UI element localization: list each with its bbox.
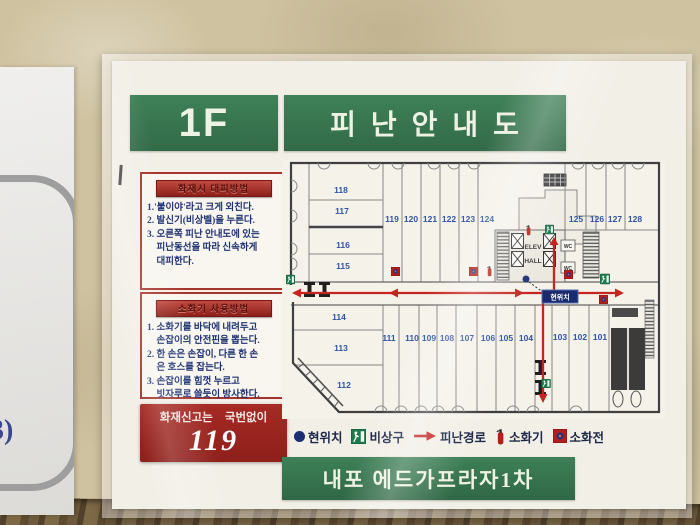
room-label-126: 126 [590, 214, 604, 224]
extinguisher-instructions-box: 소화기 사용방법 1. 소화기를 바닥에 내려두고 손잡이의 안전핀을 뽑는다.… [140, 292, 287, 399]
vent-grid [544, 174, 566, 186]
room-label-122: 122 [442, 214, 456, 224]
emergency-call-label: 화재신고는 국번없이 [140, 404, 287, 425]
legend-fire-hydrant: 소화전 [553, 427, 605, 446]
tape-mark [118, 165, 122, 185]
room-label-112: 112 [337, 380, 351, 390]
route-arrow-icon [413, 430, 437, 442]
room-label-106: 106 [481, 333, 495, 343]
room-label-105: 105 [499, 333, 513, 343]
room-label-116: 116 [336, 240, 350, 250]
room-label-102: 102 [573, 332, 587, 342]
map-legend: 현위치 비상구 피난경로 소화기 소화전 [284, 423, 614, 449]
legend-label: 비상구 [369, 427, 404, 446]
legend-fire-extinguisher: 소화기 [495, 427, 544, 446]
legend-evacuation-route: 피난경로 [413, 427, 486, 446]
hydrant-icon [599, 295, 608, 304]
hall-label: HALL [524, 258, 541, 265]
elevator-icon [512, 252, 524, 267]
exit-icon [286, 275, 295, 284]
stairs-left [497, 232, 509, 280]
room-label-127: 127 [608, 214, 622, 224]
legend-emergency-exit: 비상구 [351, 427, 404, 446]
room-label-115: 115 [336, 261, 350, 271]
location-dot-icon [294, 431, 305, 442]
hydrant-icon [564, 270, 573, 279]
building-name-bar: 내포 에드가프라자1차 [282, 457, 575, 500]
legend-label: 현위치 [308, 427, 343, 446]
legend-label: 피난경로 [440, 427, 486, 446]
room-label-104: 104 [519, 333, 533, 343]
elevator-icon [512, 234, 524, 249]
room-label-113: 113 [334, 343, 348, 353]
extinguisher-instructions-title: 소화기 사용방법 [156, 300, 272, 317]
room-label-123: 123 [461, 214, 475, 224]
room-label-101: 101 [593, 332, 607, 342]
hydrant-icon [469, 267, 478, 276]
hydrant-icon [391, 267, 400, 276]
room-label-103: 103 [553, 332, 567, 342]
wc-label: WC [564, 244, 573, 250]
room-label-109: 109 [422, 333, 436, 343]
room-label-124: 124 [480, 214, 494, 224]
current-location-badge: 현위치 [542, 290, 578, 303]
fire-evacuation-instructions-box: 화재시 대피방법 1.'불이야'라고 크게 외친다. 2. 발신기(비상벨)을 … [140, 172, 287, 290]
photo-of-evacuation-sign: 3) 1F 피난안내도 화재시 대피방법 1.'불이야'라고 크게 외친다. 2… [0, 0, 700, 525]
exit-icon [351, 429, 366, 444]
fire-instructions-body: 1.'불이야'라고 크게 외친다. 2. 발신기(비상벨)을 누른다. 3. 오… [142, 200, 285, 271]
svg-text:현위치: 현위치 [550, 293, 569, 302]
room-label-125: 125 [569, 214, 583, 224]
exit-icon [545, 225, 554, 234]
legend-current-location: 현위치 [294, 427, 343, 446]
extinguisher-icon [495, 428, 506, 445]
floor-plan: ELEV HALL WC WC [282, 160, 665, 419]
exit-icon [600, 274, 610, 284]
adjacent-wall-paper: 3) [0, 67, 74, 515]
floor-label: 1F [130, 95, 278, 151]
room-label-107: 107 [460, 333, 474, 343]
emergency-call-box: 화재신고는 국번없이 119 [140, 404, 287, 462]
current-location-dot [523, 276, 530, 283]
room-label-117: 117 [335, 206, 349, 216]
paper-partial-text: 3) [0, 415, 13, 447]
evacuation-sign: 1F 피난안내도 화재시 대피방법 1.'불이야'라고 크게 외친다. 2. 발… [112, 61, 686, 509]
elev-label: ELEV [525, 244, 543, 251]
room-label-121: 121 [423, 214, 437, 224]
legend-label: 소화기 [509, 427, 544, 446]
stairs-right [583, 232, 599, 278]
room-label-118: 118 [334, 185, 348, 195]
hydrant-icon [553, 429, 567, 443]
legend-label: 소화전 [570, 427, 605, 446]
room-label-110: 110 [405, 333, 419, 343]
sign-title: 피난안내도 [284, 95, 566, 151]
room-label-119: 119 [385, 214, 399, 224]
room-label-128: 128 [628, 214, 642, 224]
fire-instructions-title: 화재시 대피방법 [156, 180, 272, 197]
room-label-108: 108 [440, 333, 454, 343]
emergency-number: 119 [140, 425, 287, 457]
extinguisher-instructions-body: 1. 소화기를 바닥에 내려두고 손잡이의 안전핀을 뽑는다. 2. 한 손은 … [142, 320, 285, 405]
room-label-120: 120 [404, 214, 418, 224]
room-label-114: 114 [332, 312, 346, 322]
room-label-111: 111 [382, 333, 396, 343]
exit-icon [542, 379, 551, 388]
